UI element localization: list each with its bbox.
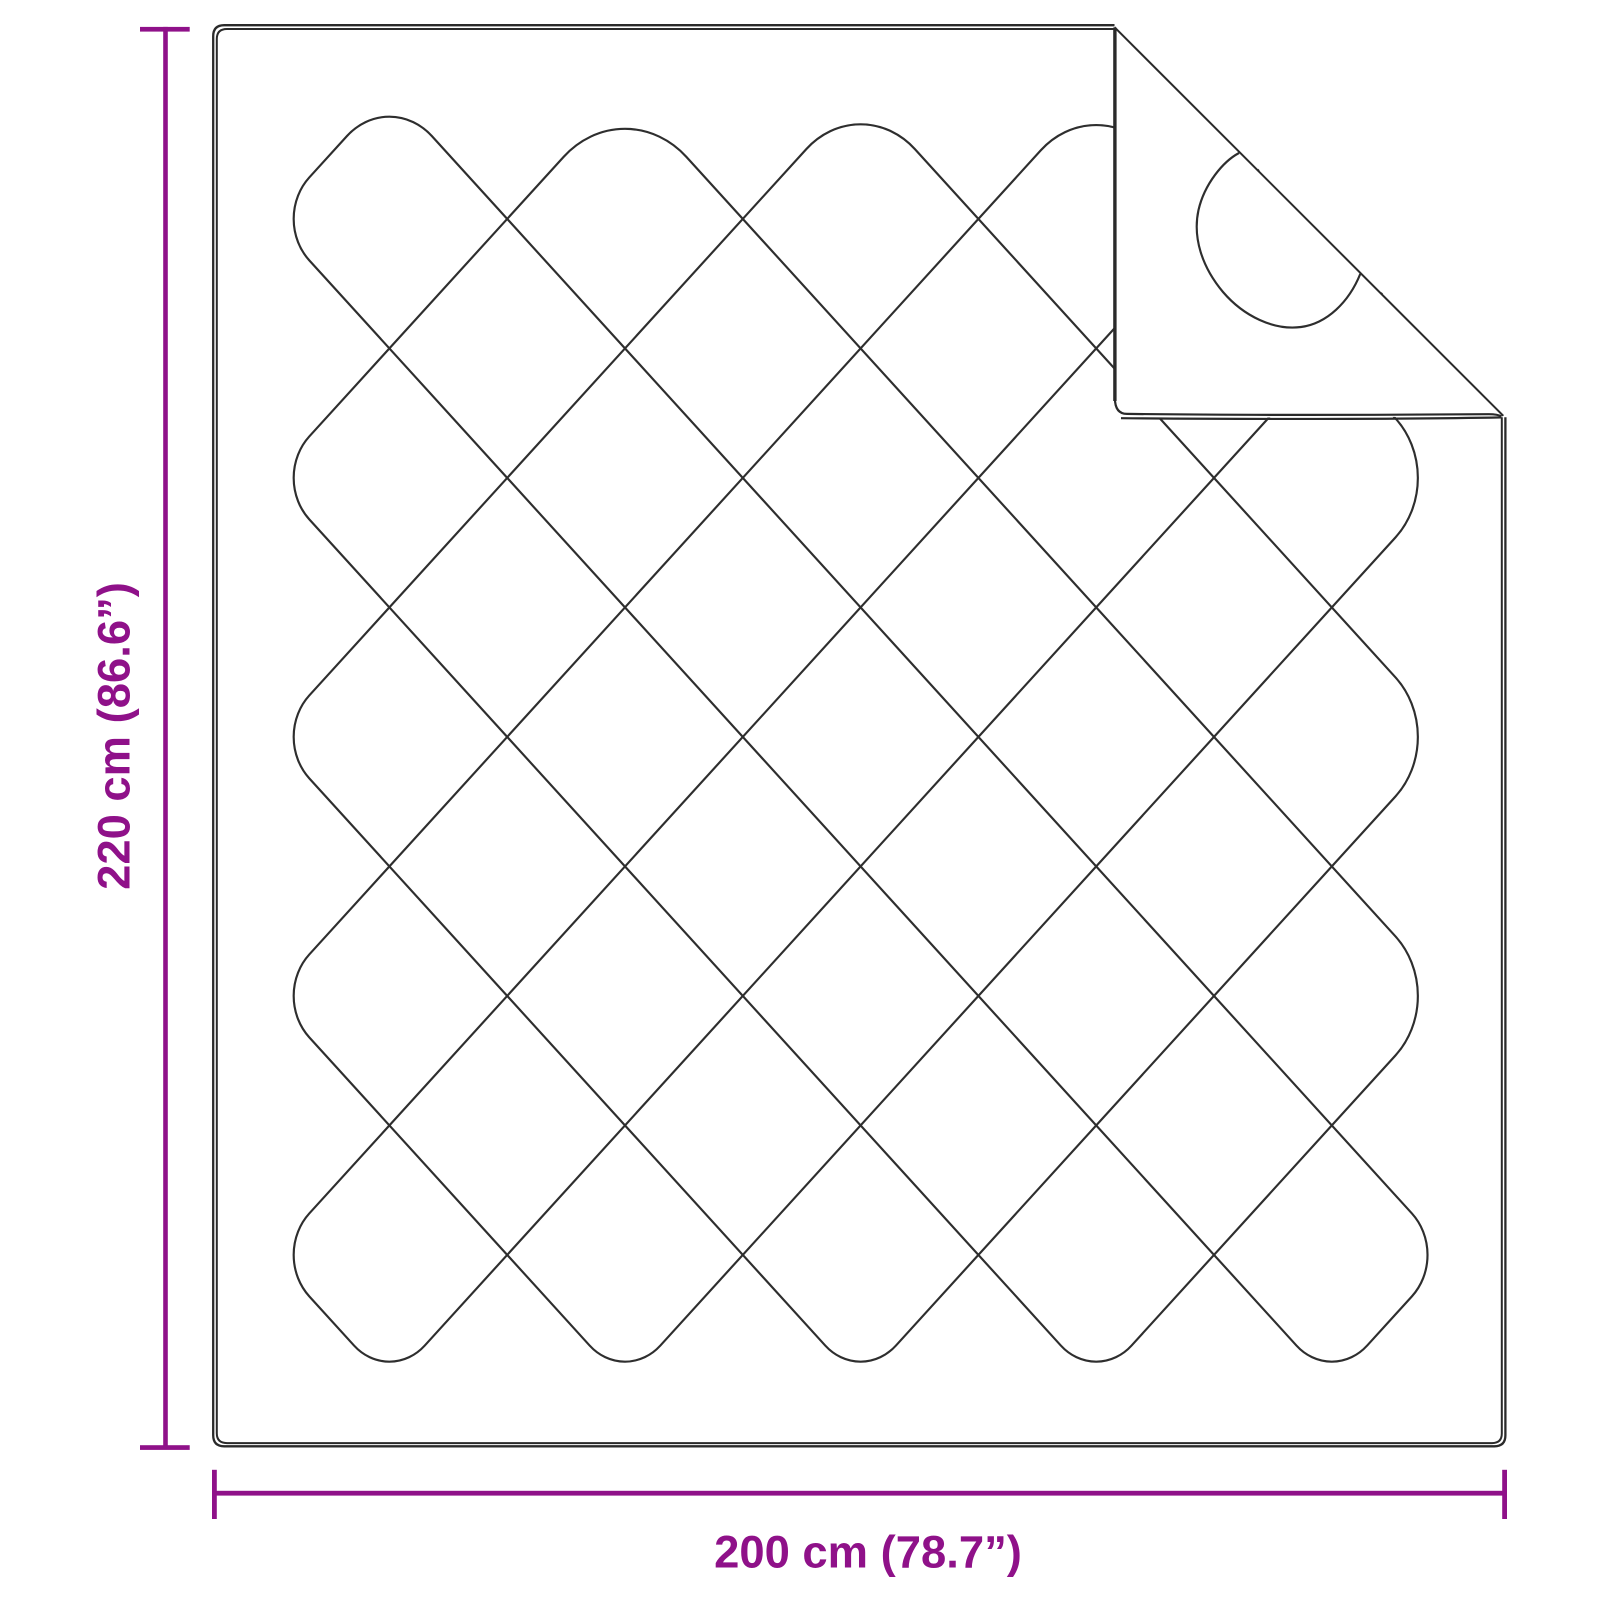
svg-text:220 cm (86.6”): 220 cm (86.6”) — [89, 582, 140, 890]
svg-text:200 cm (78.7”): 200 cm (78.7”) — [714, 1527, 1022, 1578]
